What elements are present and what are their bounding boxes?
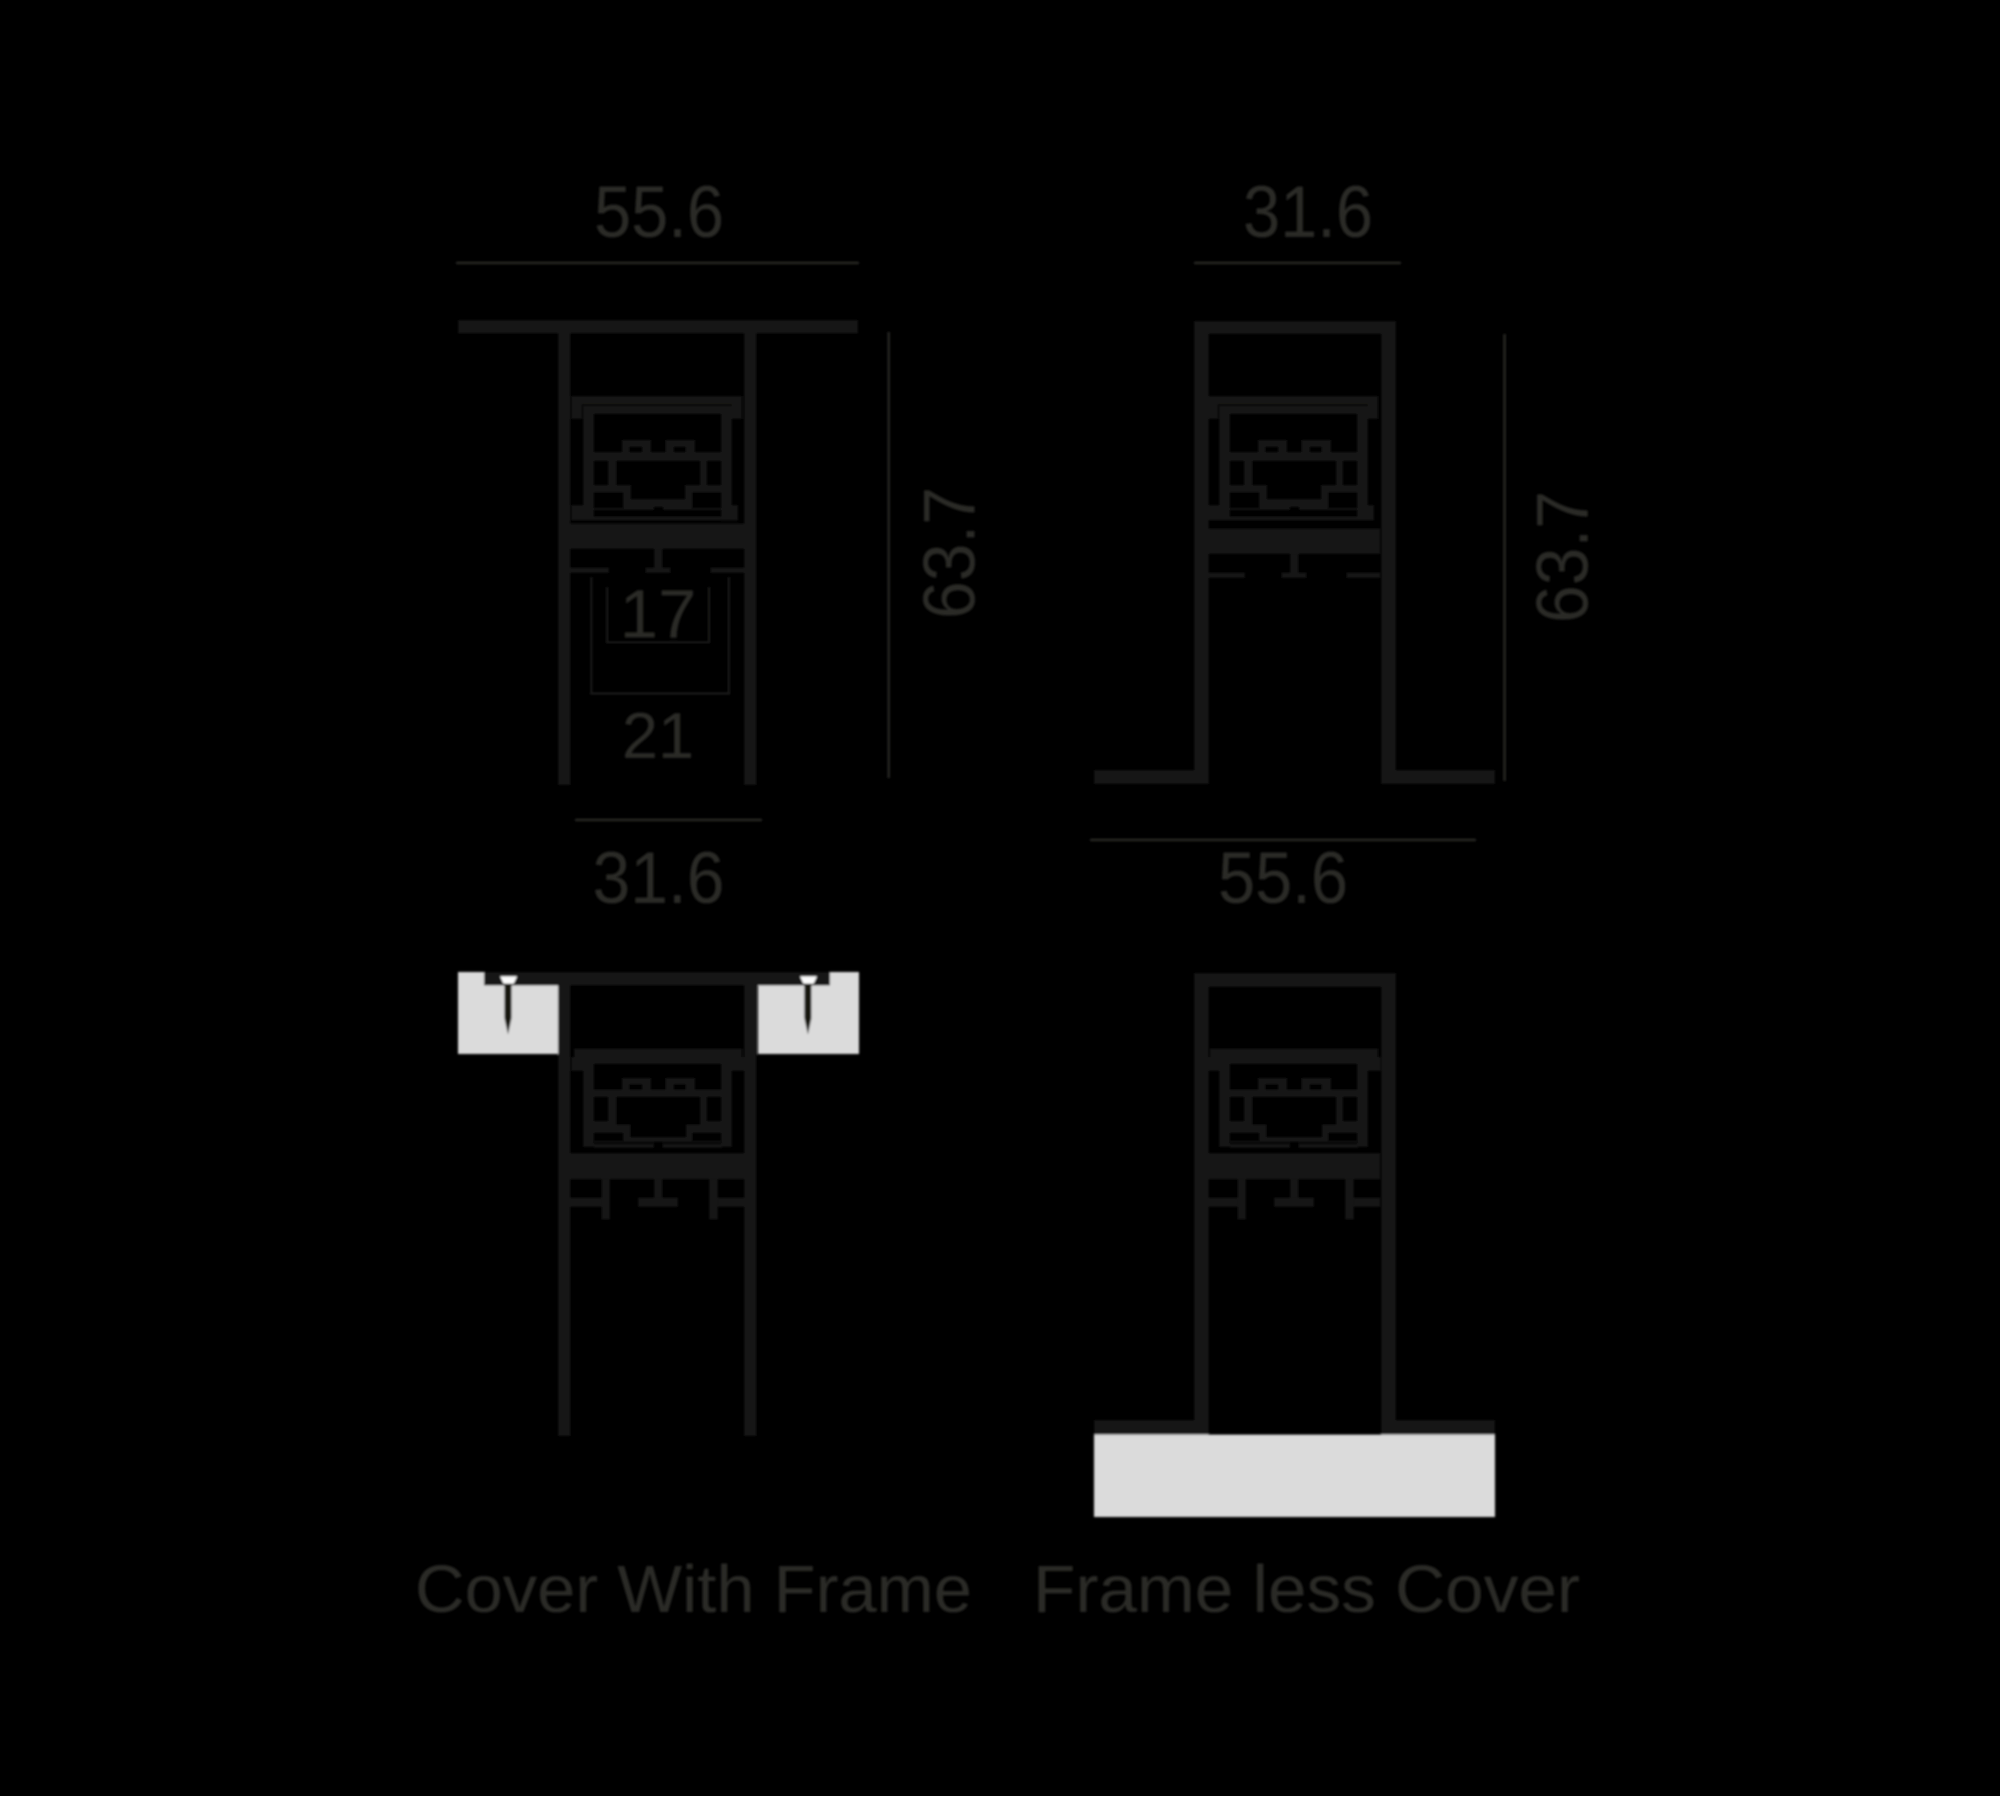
svg-text:63.7: 63.7	[1523, 491, 1604, 623]
svg-text:17: 17	[620, 576, 697, 653]
svg-text:31.6: 31.6	[593, 838, 725, 919]
svg-text:31.6: 31.6	[1243, 172, 1373, 253]
svg-text:Cover With Frame: Cover With Frame	[415, 1552, 972, 1627]
svg-text:Frame less Cover: Frame less Cover	[1033, 1552, 1580, 1627]
svg-text:63.7: 63.7	[909, 487, 990, 619]
svg-text:21: 21	[622, 699, 694, 772]
svg-text:55.6: 55.6	[594, 172, 724, 253]
svg-text:55.6: 55.6	[1218, 838, 1348, 919]
